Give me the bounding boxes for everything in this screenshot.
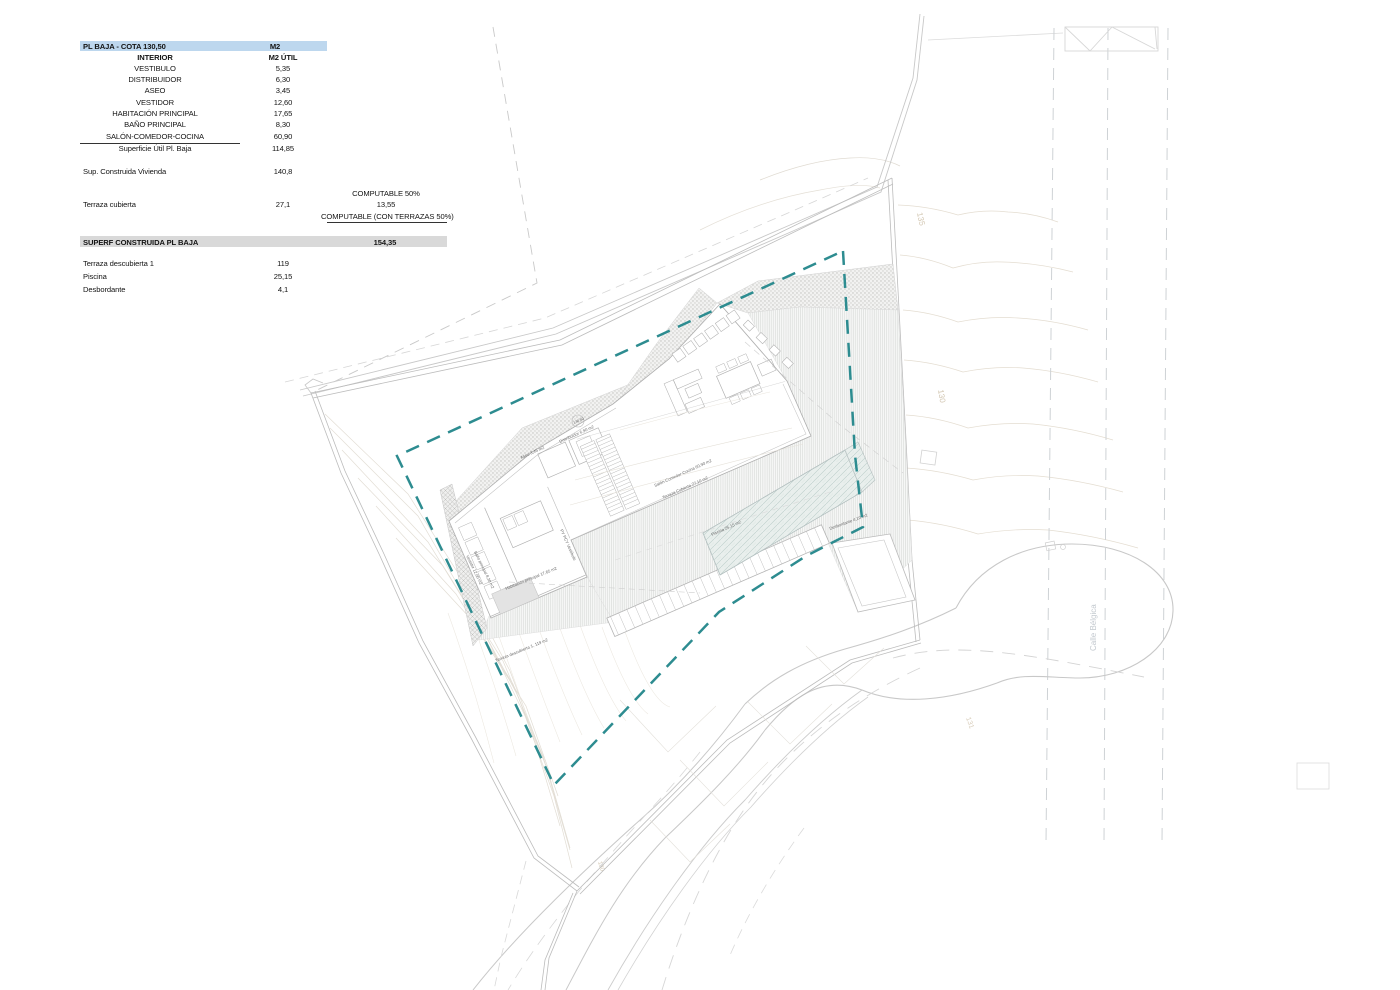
- svg-text:135: 135: [915, 212, 927, 227]
- svg-text:Calle Bélgica: Calle Bélgica: [1089, 604, 1098, 651]
- svg-text:130: 130: [936, 389, 947, 404]
- svg-text:131: 131: [964, 716, 975, 729]
